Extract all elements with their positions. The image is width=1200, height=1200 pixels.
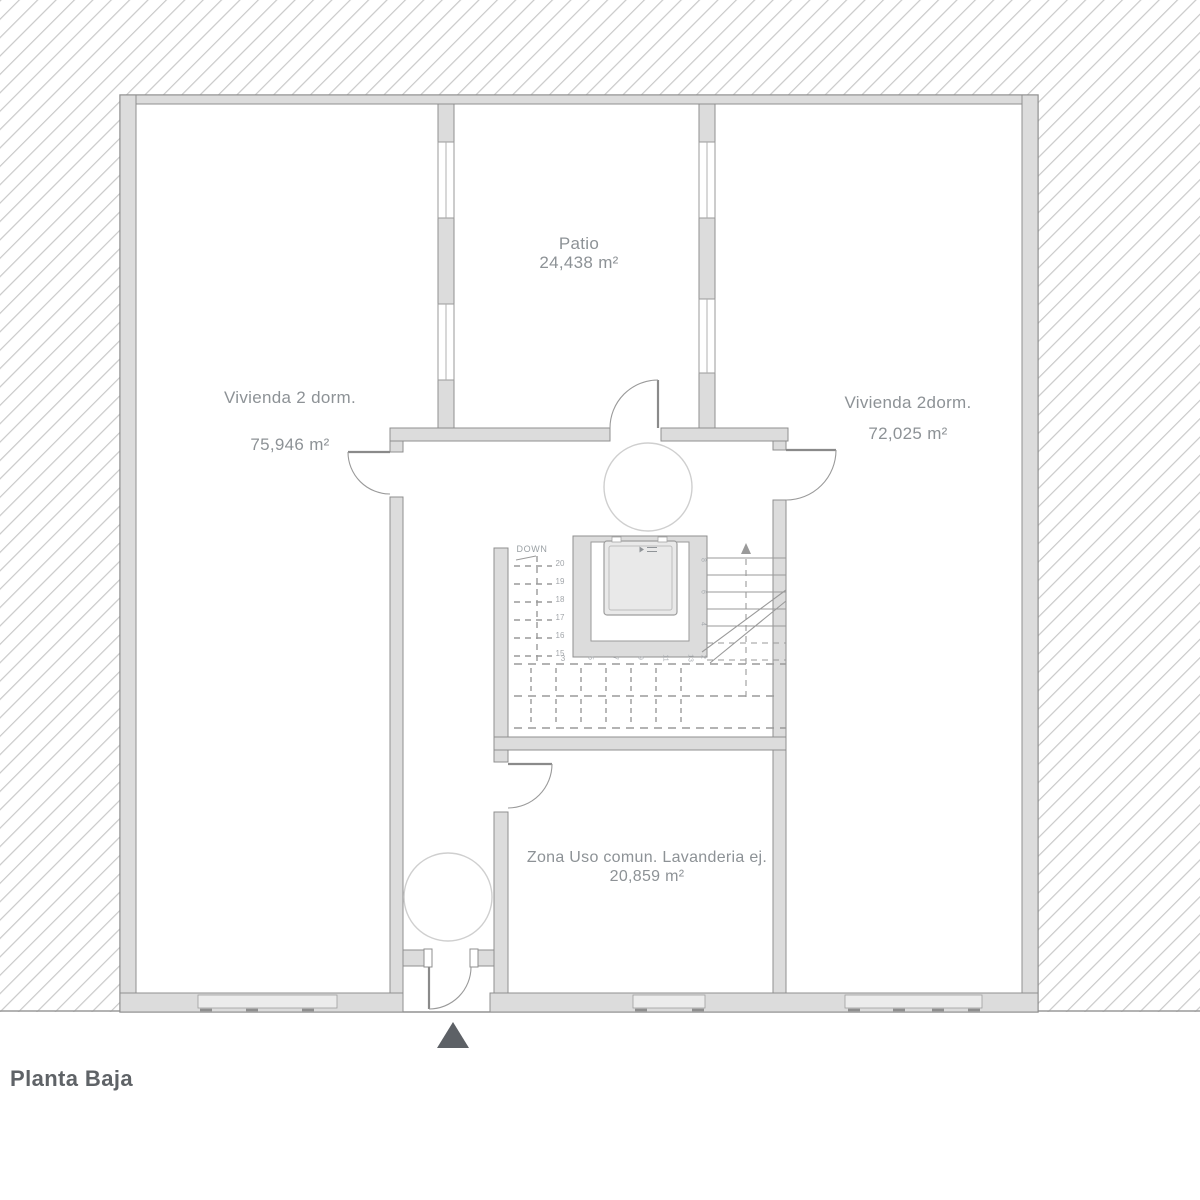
room-area-left-dwelling: 75,946 m²: [250, 435, 329, 455]
room-label-right-dwelling: Vivienda 2dorm.: [844, 393, 971, 413]
inner-wall-left-stub: [390, 441, 403, 452]
entry-wall-left: [403, 950, 424, 966]
stair-number: 9: [637, 656, 644, 660]
stair-number: 20: [556, 560, 565, 568]
hall-wall-left-segment: [390, 428, 610, 441]
floor-plan-drawing: [0, 0, 1200, 1200]
inner-wall-right-stub: [773, 441, 786, 450]
room-area-laundry: 20,859 m²: [610, 868, 685, 886]
window-right-dwelling: [845, 995, 982, 1008]
plan-title: Planta Baja: [10, 1066, 133, 1092]
room-label-laundry: Zona Uso comun. Lavanderia ej.: [527, 849, 767, 867]
outer-wall-left: [120, 95, 136, 1012]
room-area-right-dwelling: 72,025 m²: [868, 424, 947, 444]
room-area-patio: 24,438 m²: [539, 253, 618, 273]
outer-wall-right: [1022, 95, 1038, 1012]
stair-number: 3: [561, 655, 565, 663]
stair-down-label: DOWN: [517, 544, 548, 554]
entry-wall-right: [478, 950, 494, 966]
inner-wall-left: [390, 497, 403, 993]
elevator-car: [604, 541, 677, 615]
stairwell-wall-upper: [494, 548, 508, 762]
stair-number: 17: [556, 614, 565, 622]
stair-number: 7: [612, 656, 619, 660]
stair-number: 6: [700, 590, 707, 594]
room-label-left-dwelling: Vivienda 2 dorm.: [224, 388, 356, 408]
room-label-patio: Patio: [559, 234, 599, 254]
stair-number: 2: [700, 655, 707, 659]
outer-wall-top: [120, 95, 1038, 104]
laundry-top-wall: [494, 737, 786, 750]
stair-number: 11: [662, 654, 669, 661]
entrance-triangle-marker: [437, 1022, 469, 1048]
elevator-door-notch: [658, 537, 667, 542]
stair-number: 5: [587, 656, 594, 660]
elevator-door-notch: [612, 537, 621, 542]
stairwell-wall-lower: [494, 812, 508, 993]
elevator-shaft: [573, 536, 707, 657]
stair-number: 18: [556, 596, 565, 604]
stair-number: 4: [700, 622, 707, 626]
stair-number: 19: [556, 578, 565, 586]
hall-wall-right-segment: [661, 428, 788, 441]
stair-number: 13: [687, 654, 694, 662]
floor-plan-canvas: Vivienda 2 dorm. 75,946 m² Patio 24,438 …: [0, 0, 1200, 1200]
window-laundry: [633, 995, 705, 1008]
stair-number: 16: [556, 632, 565, 640]
stair-number: 8: [700, 558, 707, 562]
window-left-dwelling: [198, 995, 337, 1008]
